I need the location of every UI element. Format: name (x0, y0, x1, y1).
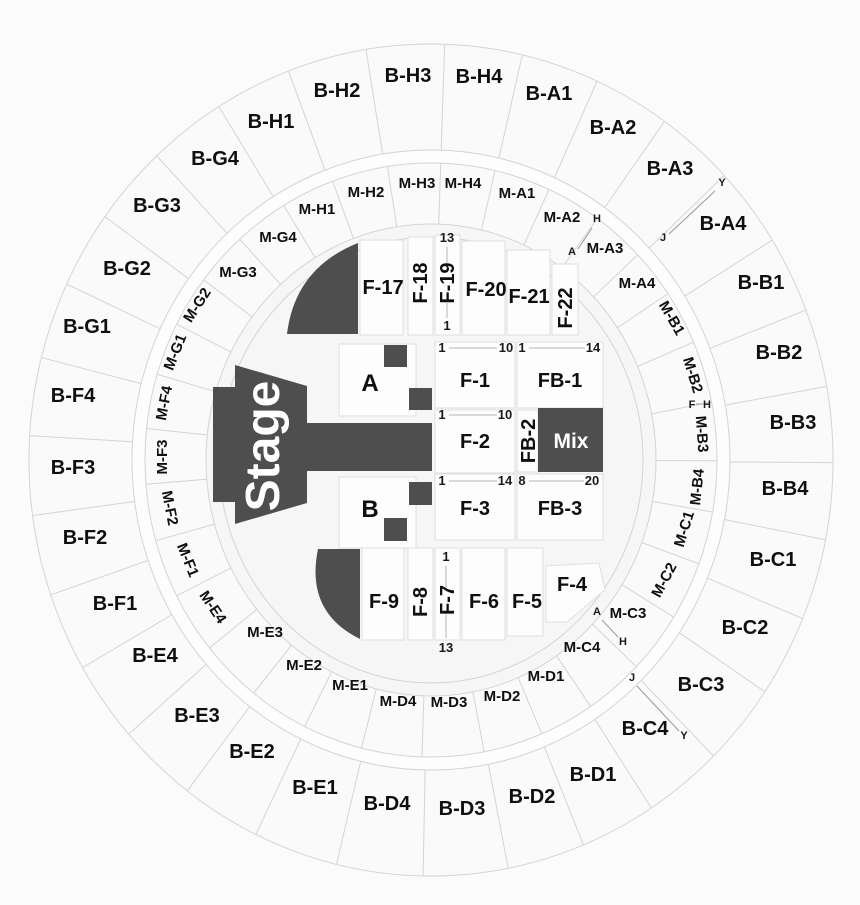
section-label-b-g3[interactable]: B-G3 (133, 195, 181, 217)
section-label-b-c2[interactable]: B-C2 (722, 617, 769, 639)
blocked-platform-4 (384, 518, 407, 541)
row-number-f7-bottom: 13 (439, 640, 453, 655)
section-label-b-d2[interactable]: B-D2 (509, 786, 556, 808)
marker-y-bottom: Y (680, 730, 688, 742)
section-label-m-g4[interactable]: M-G4 (259, 229, 297, 246)
floor-label-f-17: F-17 (362, 277, 403, 299)
section-label-b-d4[interactable]: B-D4 (364, 793, 412, 815)
section-label-b-f2[interactable]: B-F2 (63, 527, 107, 549)
section-label-m-d2[interactable]: M-D2 (484, 688, 521, 705)
marker-y-top: Y (718, 177, 726, 189)
row-number-f1-end: 10 (499, 340, 513, 355)
section-label-m-a3[interactable]: M-A3 (587, 240, 624, 257)
marker-a-top: A (568, 246, 576, 258)
section-label-b-e2[interactable]: B-E2 (229, 741, 275, 763)
floor-label-f-5: F-5 (512, 591, 542, 613)
blocked-platform-2 (409, 388, 432, 410)
floor-label-f-21: F-21 (508, 286, 549, 308)
section-label-b-b1[interactable]: B-B1 (738, 272, 785, 294)
marker-j-bottom: J (629, 672, 635, 684)
section-label-b-e3[interactable]: B-E3 (174, 705, 220, 727)
section-label-m-c4[interactable]: M-C4 (564, 639, 601, 656)
section-label-b-a3[interactable]: B-A3 (647, 158, 694, 180)
section-label-b-b2[interactable]: B-B2 (756, 342, 803, 364)
section-label-b-g1[interactable]: B-G1 (63, 316, 111, 338)
section-label-m-a2[interactable]: M-A2 (544, 209, 581, 226)
section-label-b-h2[interactable]: B-H2 (314, 80, 361, 102)
section-label-b-g2[interactable]: B-G2 (103, 258, 151, 280)
row-number-fb3-start: 8 (518, 473, 525, 488)
seating-chart-svg: B-H3 B-H4 B-H2 B-A1 B-H1 B-A2 B-G4 B-A3 … (0, 0, 860, 900)
row-number-f2-start: 1 (438, 407, 445, 422)
section-label-b-b4[interactable]: B-B4 (762, 478, 810, 500)
section-label-m-a4[interactable]: M-A4 (619, 275, 656, 292)
section-label-b-h4[interactable]: B-H4 (456, 66, 504, 88)
floor-label-f-8: F-8 (410, 587, 432, 617)
section-label-m-b3[interactable]: M-B3 (692, 415, 712, 453)
floor-label-f-1: F-1 (460, 370, 490, 392)
blocked-platform-1 (384, 345, 407, 367)
section-label-b-d1[interactable]: B-D1 (570, 764, 617, 786)
section-label-m-d4[interactable]: M-D4 (380, 693, 417, 710)
mix-label: Mix (553, 430, 588, 453)
row-number-f7-top: 1 (442, 549, 449, 564)
section-label-m-h2[interactable]: M-H2 (348, 184, 385, 201)
ring-divider (730, 462, 833, 463)
row-number-f19-top: 13 (440, 230, 454, 245)
section-label-b-c3[interactable]: B-C3 (678, 674, 725, 696)
row-number-f19-bottom: 1 (443, 318, 450, 333)
section-label-m-h3[interactable]: M-H3 (399, 175, 436, 192)
floor-label-f-2: F-2 (460, 431, 490, 453)
section-label-m-c3[interactable]: M-C3 (610, 605, 647, 622)
section-label-b-b3[interactable]: B-B3 (770, 412, 817, 434)
row-number-fb1-end: 14 (586, 340, 601, 355)
section-label-b-f4[interactable]: B-F4 (51, 385, 96, 407)
floor-label-f-22: F-22 (555, 287, 577, 328)
section-label-m-e3[interactable]: M-E3 (247, 624, 283, 641)
row-number-fb1-start: 1 (518, 340, 525, 355)
section-label-b-h1[interactable]: B-H1 (248, 111, 295, 133)
marker-h-right: H (703, 399, 711, 411)
section-label-b-e4[interactable]: B-E4 (132, 645, 178, 667)
marker-f-right: F (689, 399, 696, 411)
row-number-f1-start: 1 (438, 340, 445, 355)
section-label-m-e1[interactable]: M-E1 (332, 677, 368, 694)
section-label-m-e2[interactable]: M-E2 (286, 657, 322, 674)
section-label-m-g3[interactable]: M-G3 (219, 264, 257, 281)
section-label-b-a2[interactable]: B-A2 (590, 117, 637, 139)
marker-j-top: J (660, 232, 666, 244)
floor-label-f-19: F-19 (437, 262, 459, 303)
section-label-b-h3[interactable]: B-H3 (385, 65, 432, 87)
row-number-f3-end: 14 (498, 473, 513, 488)
section-label-m-h4[interactable]: M-H4 (445, 175, 482, 192)
marker-h-bottom: H (619, 636, 627, 648)
floor-label-f-4: F-4 (557, 574, 588, 596)
row-number-f3-start: 1 (438, 473, 445, 488)
section-label-b-a1[interactable]: B-A1 (526, 83, 573, 105)
floor-label-f-20: F-20 (465, 279, 506, 301)
section-label-m-h1[interactable]: M-H1 (299, 201, 336, 218)
floor-label-f-7: F-7 (437, 585, 459, 615)
section-label-b-g4[interactable]: B-G4 (191, 148, 240, 170)
section-label-b-d3[interactable]: B-D3 (439, 798, 486, 820)
floor-label-fb-2: FB-2 (518, 419, 540, 463)
pit-label-a: A (361, 370, 378, 397)
floor-label-fb-1: FB-1 (538, 370, 582, 392)
section-label-b-a4[interactable]: B-A4 (700, 213, 748, 235)
row-number-fb3-end: 20 (585, 473, 599, 488)
section-label-m-d1[interactable]: M-D1 (528, 668, 565, 685)
blocked-platform-3 (409, 482, 432, 505)
section-label-b-c4[interactable]: B-C4 (622, 718, 670, 740)
row-number-f2-end: 10 (498, 407, 512, 422)
section-label-m-f3[interactable]: M-F3 (154, 440, 171, 475)
floor-label-f-18: F-18 (410, 262, 432, 303)
section-label-m-a1[interactable]: M-A1 (499, 185, 536, 202)
marker-h-top: H (593, 213, 601, 225)
section-label-b-f3[interactable]: B-F3 (51, 457, 95, 479)
marker-a-bottom: A (593, 606, 601, 618)
section-label-b-e1[interactable]: B-E1 (292, 777, 338, 799)
floor-label-f-3: F-3 (460, 498, 490, 520)
floor-label-fb-3: FB-3 (538, 498, 582, 520)
pit-label-b: B (361, 496, 378, 523)
floor-label-f-6: F-6 (469, 591, 499, 613)
section-label-m-d3[interactable]: M-D3 (431, 694, 468, 711)
floor-label-f-9: F-9 (369, 591, 399, 613)
stage-label: Stage (237, 381, 290, 512)
seating-chart: B-H3 B-H4 B-H2 B-A1 B-H1 B-A2 B-G4 B-A3 … (0, 0, 860, 900)
section-label-b-f1[interactable]: B-F1 (93, 593, 137, 615)
section-label-b-c1[interactable]: B-C1 (750, 549, 797, 571)
